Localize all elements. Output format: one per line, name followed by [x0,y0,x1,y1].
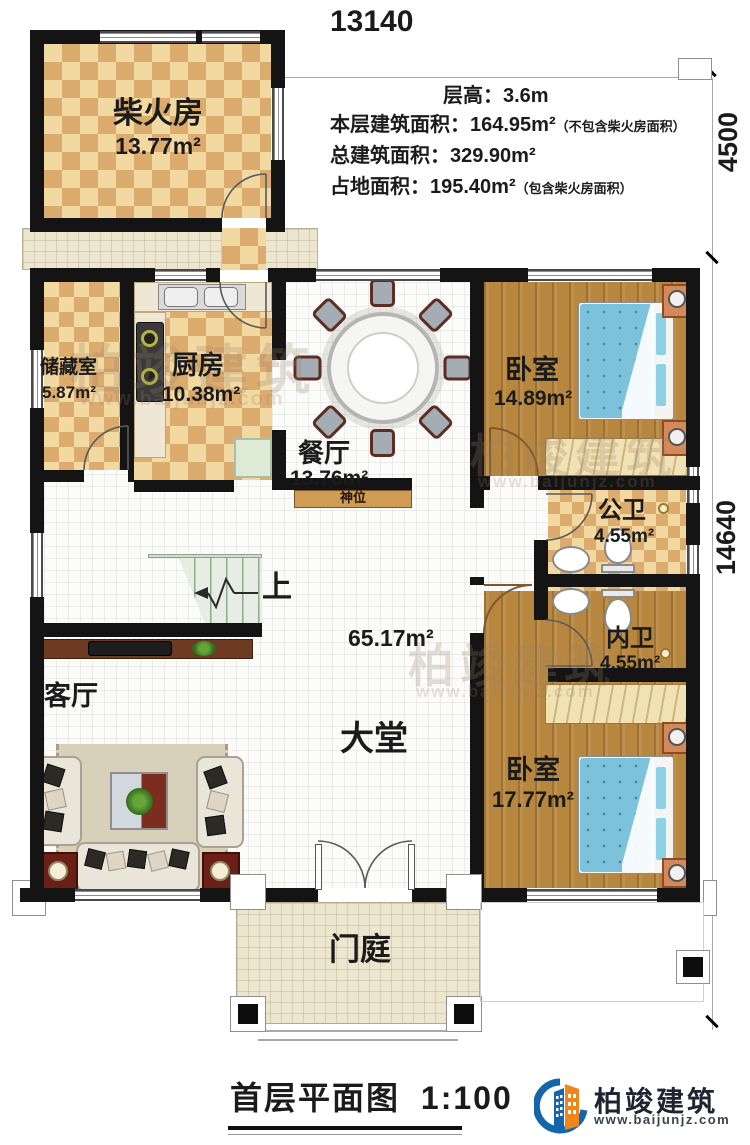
sink-basin [164,287,198,307]
room-area: 17.77m² [492,788,574,811]
corner-marker [678,58,712,80]
porch-step [250,1030,466,1032]
wall-segment [440,268,528,282]
room-label: 大堂 [340,722,408,758]
toilet-tank [601,564,635,573]
wall-segment [20,888,75,902]
kitchen-fridge [234,438,272,478]
sink-basin [204,287,238,307]
wall-segment [686,583,700,902]
window [75,889,200,901]
porch-column [230,874,266,910]
room-label: 餐厅 [298,440,350,467]
room-area: 65.17m² [348,626,434,650]
nightstand-lamp [668,864,686,882]
table-lamp [210,861,230,881]
info-floor-height: 层高：3.6m [443,86,549,107]
sofa-cushion [168,848,189,869]
plan-title-text: 首层平面图 [230,1080,400,1116]
wall-segment [30,282,44,350]
stairs-landing [148,554,262,558]
room-area: 14.89m² [494,388,572,410]
wall-hook [660,648,671,659]
info-note: （不包含柴火房面积） [556,119,686,134]
dining-chair [370,279,395,307]
porch-column-core [454,1004,474,1024]
bed-sheet [622,758,654,872]
wall-segment [30,218,222,232]
room-area: 5.87m² [42,384,96,402]
plan-title: 首层平面图 1:100 [230,1082,513,1116]
window [31,533,43,597]
room-area: 4.55m² [600,654,660,674]
logo-icon [534,1076,590,1138]
wall-segment [534,540,548,620]
table-lamp [48,861,68,881]
info-value: 329.90m² [450,145,536,167]
side-terrace [480,902,704,1002]
wall-segment [44,470,84,482]
wall-segment [657,888,700,902]
wall-segment [271,160,285,218]
floor-plan: 13140 4500 14640 层高：3.6m 本层建筑面积：164.95m²… [0,0,750,1145]
wall-segment [686,282,700,467]
bathroom-sink [552,588,590,615]
room-area: 13.76m² [290,468,368,490]
wall-segment [206,268,220,282]
window [528,269,652,281]
wall-segment [271,44,285,88]
sofa-cushion [43,811,65,833]
info-note: （包含柴火房面积） [516,181,633,196]
sofa-cushion [106,851,127,872]
watermark-url: www.baijunjz.com [416,682,595,702]
wall-segment [134,480,234,492]
wall-segment [266,218,285,232]
logo-url: www.baijunjz.com [594,1112,730,1127]
walkway-door-path [222,228,266,270]
info-value: 164.95m² [470,114,556,136]
room-area: 13.77m² [92,134,224,158]
walkway [22,228,318,270]
porch-column-core [238,1004,258,1024]
tv [88,641,172,656]
room-label: 柴火房 [92,98,224,130]
dining-chair [444,356,472,381]
sofa-cushion [127,849,147,869]
info-value: 195.40m² [430,176,516,198]
wall-segment [686,503,700,545]
dimension-right-upper: 4500 [714,112,742,172]
watermark-url: www.baijunjz.com [478,472,657,492]
info-label: 层高： [443,85,503,107]
wall-hook [658,503,669,514]
sofa-cushion [44,788,67,811]
wall-segment [30,623,262,637]
wall-segment [30,268,155,282]
window [272,88,284,160]
dimension-width: 13140 [330,6,413,38]
wall-segment [30,408,44,533]
room-label: 储藏室 [40,358,97,378]
bed-sheet [622,304,654,418]
corner-marker [703,880,717,916]
bathroom-sink [552,546,590,573]
porch-step [258,1039,458,1041]
nightstand-lamp [668,728,686,746]
room-area: 10.38m² [162,384,240,406]
room-label: 门庭 [300,934,420,967]
wall-segment [470,577,484,585]
sofa-cushion [205,815,226,836]
room-area: 4.55m² [594,527,654,547]
window [527,889,657,901]
wall-segment [30,597,44,888]
dimension-right-lower: 14640 [712,500,740,575]
room-label: 客厅 [44,682,98,710]
window [202,31,260,43]
room-label: 卧室 [505,356,559,384]
dining-table-center [347,332,419,404]
wall-segment [548,574,700,587]
info-label: 总建筑面积： [330,145,450,167]
bed-pillow [654,765,668,811]
room-label: 内卫 [606,626,654,651]
plan-scale: 1:100 [421,1080,513,1116]
window [316,269,440,281]
stairs-up-label: 上 [262,572,292,604]
info-label: 本层建筑面积： [330,114,470,136]
title-underline [228,1134,462,1135]
room-label: 卧室 [506,756,560,784]
entry-door-leaf [315,844,322,890]
toilet-tank [601,589,635,598]
dining-chair [370,429,395,457]
info-floor-area: 本层建筑面积：164.95m²（不包含柴火房面积） [330,115,686,136]
wall-segment [30,44,44,218]
terrace-column-core [683,957,703,977]
wall-segment [268,268,316,282]
porch-column [446,874,482,910]
room-label: 公卫 [598,498,646,523]
entry-door-leaf [408,844,415,890]
wall-segment [652,268,700,282]
info-total-area: 总建筑面积：329.90m² [330,146,536,167]
nightstand-lamp [668,290,686,308]
info-value: 3.6m [503,85,549,107]
window [100,31,196,43]
title-underline [228,1126,462,1130]
shrine-shelf: 神位 [294,490,412,508]
room-firewood-floor [44,44,271,218]
plant [192,641,216,656]
info-label: 占地面积： [330,176,430,198]
window [155,269,206,281]
bed-pillow [654,816,668,862]
info-land-area: 占地面积：195.40m²（包含柴火房面积） [330,177,633,198]
room-label: 厨房 [172,352,224,379]
plant [126,788,153,815]
bed-pillow [654,362,668,408]
